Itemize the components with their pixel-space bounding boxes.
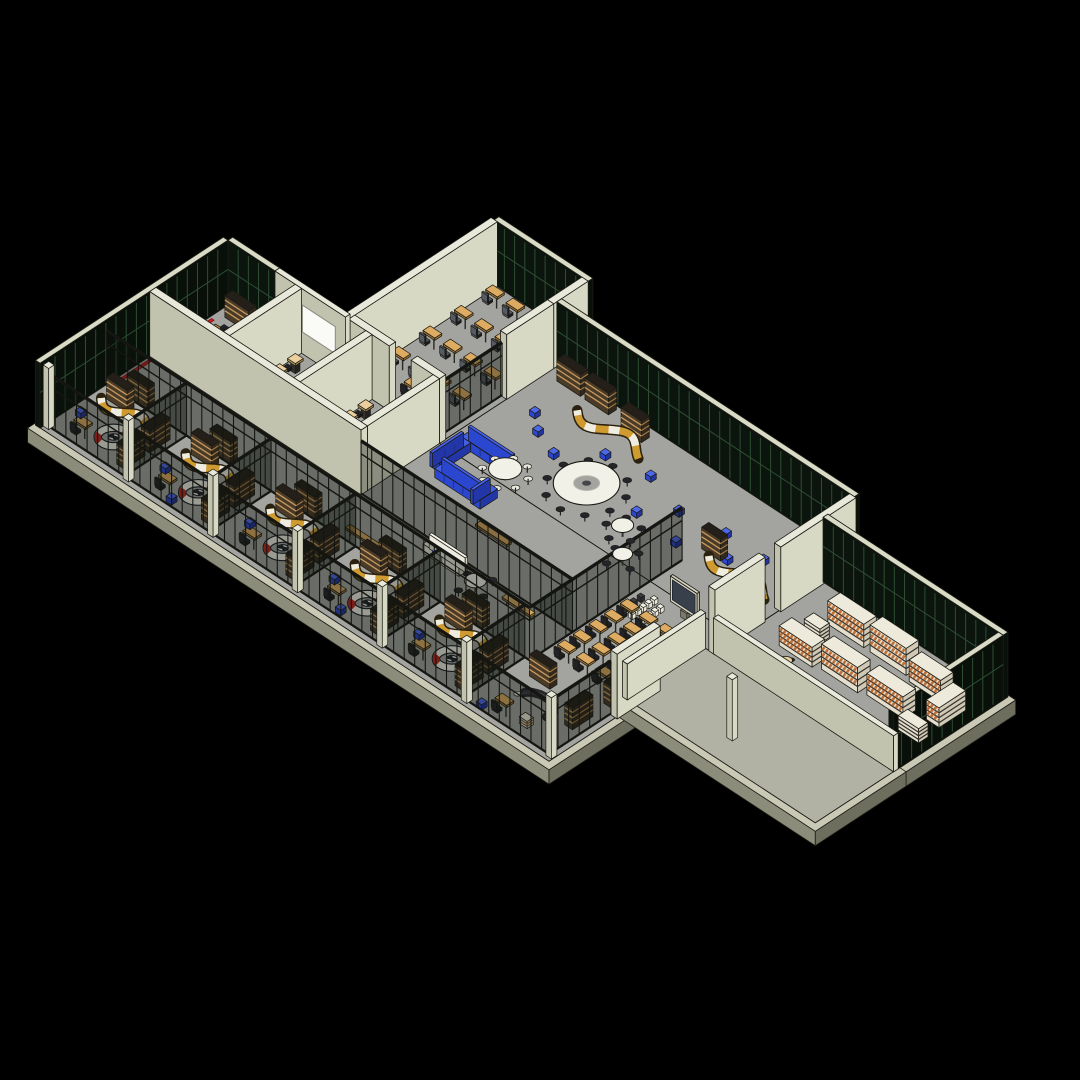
isometric-floorplan-view	[0, 0, 1080, 1080]
column	[546, 691, 557, 759]
column	[208, 469, 219, 537]
column	[727, 673, 738, 741]
column	[292, 524, 303, 592]
column	[377, 580, 388, 648]
column	[43, 361, 54, 429]
column	[123, 414, 134, 482]
canvas	[0, 0, 1080, 1080]
column	[461, 635, 472, 703]
